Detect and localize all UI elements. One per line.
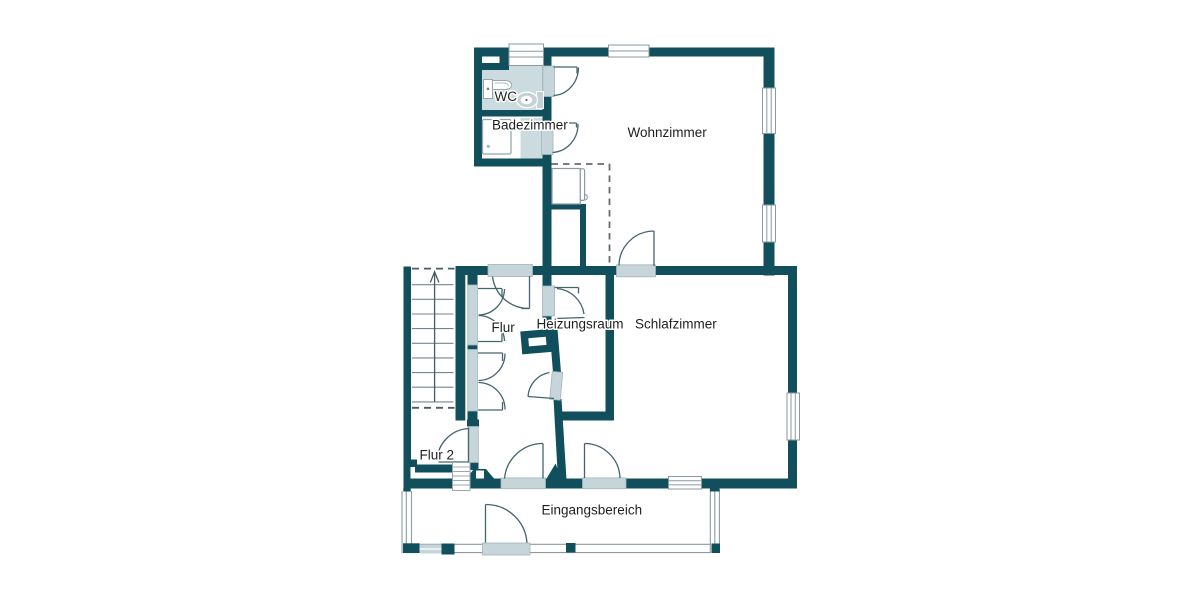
svg-text:Flur 2: Flur 2 — [420, 448, 455, 463]
svg-text:Badezimmer: Badezimmer — [492, 118, 568, 133]
svg-text:Schlafzimmer: Schlafzimmer — [635, 317, 717, 332]
svg-text:Heizungsraum: Heizungsraum — [537, 317, 624, 332]
svg-text:Eingangsbereich: Eingangsbereich — [542, 503, 643, 518]
svg-text:WC: WC — [495, 89, 518, 104]
svg-text:Flur: Flur — [492, 320, 516, 335]
svg-text:Wohnzimmer: Wohnzimmer — [628, 125, 708, 140]
